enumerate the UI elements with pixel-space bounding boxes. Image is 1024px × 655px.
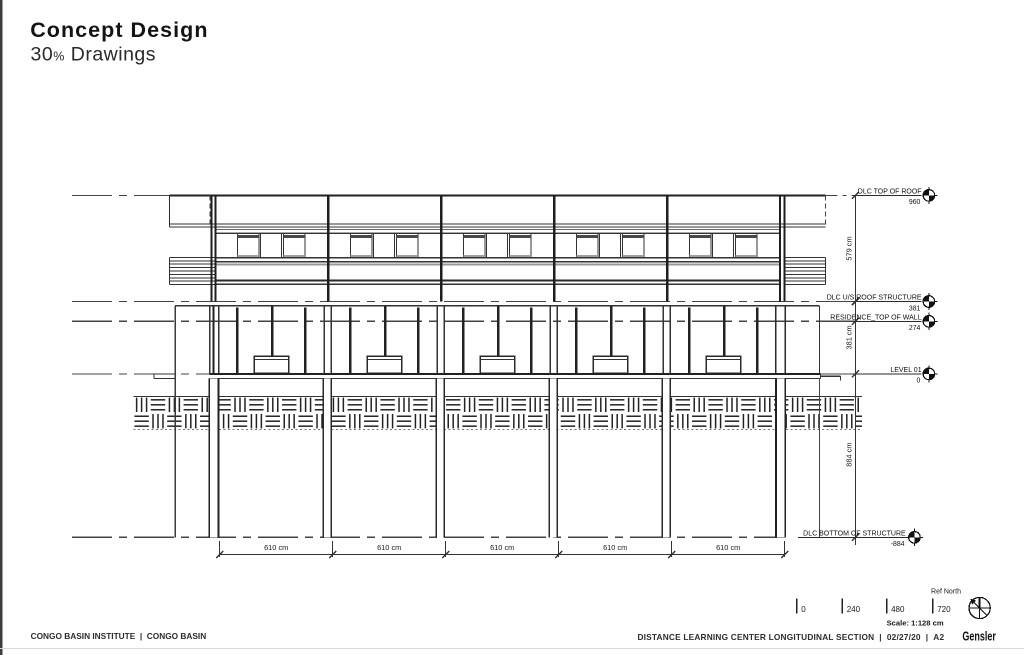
svg-text:381: 381 bbox=[909, 305, 921, 312]
svg-text:884 cm: 884 cm bbox=[844, 442, 853, 466]
svg-text:CONGO BASIN INSTITUTE | CONG: CONGO BASIN INSTITUTE | CONGO BASIN bbox=[31, 631, 207, 641]
svg-text:30% Drawings: 30% Drawings bbox=[31, 44, 157, 66]
svg-text:Ref North: Ref North bbox=[931, 589, 961, 596]
svg-text:-884: -884 bbox=[891, 541, 905, 548]
svg-text:610 cm: 610 cm bbox=[264, 543, 288, 552]
svg-text:274: 274 bbox=[909, 325, 921, 332]
svg-text:610 cm: 610 cm bbox=[603, 543, 627, 552]
svg-text:579 cm: 579 cm bbox=[844, 236, 853, 260]
svg-text:610 cm: 610 cm bbox=[377, 543, 401, 552]
svg-text:381 cm: 381 cm bbox=[844, 325, 853, 349]
svg-text:Gensler: Gensler bbox=[962, 629, 996, 644]
svg-text:DISTANCE LEARNING CENTER LONGI: DISTANCE LEARNING CENTER LONGITUDINAL SE… bbox=[637, 632, 944, 642]
svg-text:240: 240 bbox=[847, 605, 861, 614]
svg-text:720: 720 bbox=[937, 605, 951, 614]
svg-text:610 cm: 610 cm bbox=[716, 543, 740, 552]
svg-text:0: 0 bbox=[917, 378, 921, 385]
svg-text:DLC BOTTOM OF STRUCTURE: DLC BOTTOM OF STRUCTURE bbox=[803, 531, 906, 538]
svg-text:DLC U/S ROOF STRUCTURE: DLC U/S ROOF STRUCTURE bbox=[827, 295, 922, 302]
svg-text:Concept Design: Concept Design bbox=[30, 18, 208, 42]
svg-text:Scale: 1:128 cm: Scale: 1:128 cm bbox=[887, 618, 944, 627]
svg-text:480: 480 bbox=[891, 605, 905, 614]
svg-text:0: 0 bbox=[801, 605, 806, 614]
svg-text:960: 960 bbox=[909, 199, 921, 206]
svg-text:610 cm: 610 cm bbox=[490, 543, 514, 552]
svg-text:DLC TOP OF ROOF: DLC TOP OF ROOF bbox=[858, 189, 922, 196]
svg-text:RESIDENCE_TOP OF WALL: RESIDENCE_TOP OF WALL bbox=[830, 315, 921, 322]
svg-text:LEVEL 01: LEVEL 01 bbox=[890, 367, 921, 374]
